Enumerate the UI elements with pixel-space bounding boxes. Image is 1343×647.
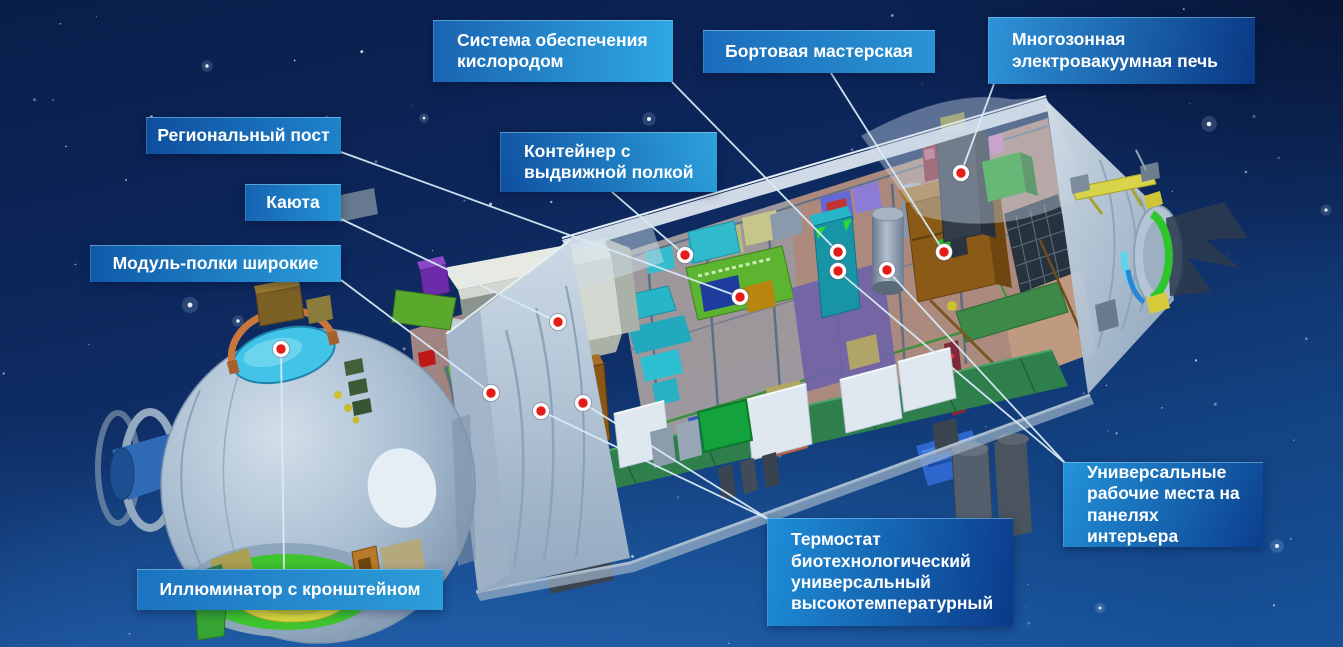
leader-line-wide-shelves bbox=[341, 280, 491, 393]
marker-dot-universal-workplaces bbox=[830, 263, 847, 280]
leader-line-container-shelf bbox=[612, 192, 685, 255]
marker-dot-cabin bbox=[550, 314, 567, 331]
leader-line-cabin bbox=[341, 219, 558, 322]
leader-line-oxygen-system bbox=[672, 82, 838, 252]
leader-line-universal-workplaces bbox=[887, 270, 1066, 464]
marker-dot-universal-workplaces bbox=[879, 262, 896, 279]
callout-lines-layer bbox=[0, 0, 1343, 647]
leader-line-multizone-furnace bbox=[961, 84, 994, 173]
infographic-canvas: Система обеспечения кислородомБортовая м… bbox=[0, 0, 1343, 647]
marker-dot-container-shelf bbox=[677, 247, 694, 264]
marker-dot-wide-shelves bbox=[483, 385, 500, 402]
marker-dot-thermostat bbox=[575, 395, 592, 412]
leader-line-regional-post bbox=[341, 152, 740, 297]
leader-line-onboard-workshop bbox=[831, 73, 944, 252]
leader-line-thermostat bbox=[541, 411, 770, 520]
marker-dot-oxygen-system bbox=[830, 244, 847, 261]
marker-dot-thermostat bbox=[533, 403, 550, 420]
leader-line-universal-workplaces bbox=[838, 271, 1066, 464]
marker-dot-onboard-workshop bbox=[936, 244, 953, 261]
marker-dot-multizone-furnace bbox=[953, 165, 970, 182]
leader-line-porthole-bracket bbox=[281, 349, 284, 569]
marker-dot-regional-post bbox=[732, 289, 749, 306]
leader-line-thermostat bbox=[583, 403, 770, 520]
marker-dot-porthole-bracket bbox=[273, 341, 290, 358]
